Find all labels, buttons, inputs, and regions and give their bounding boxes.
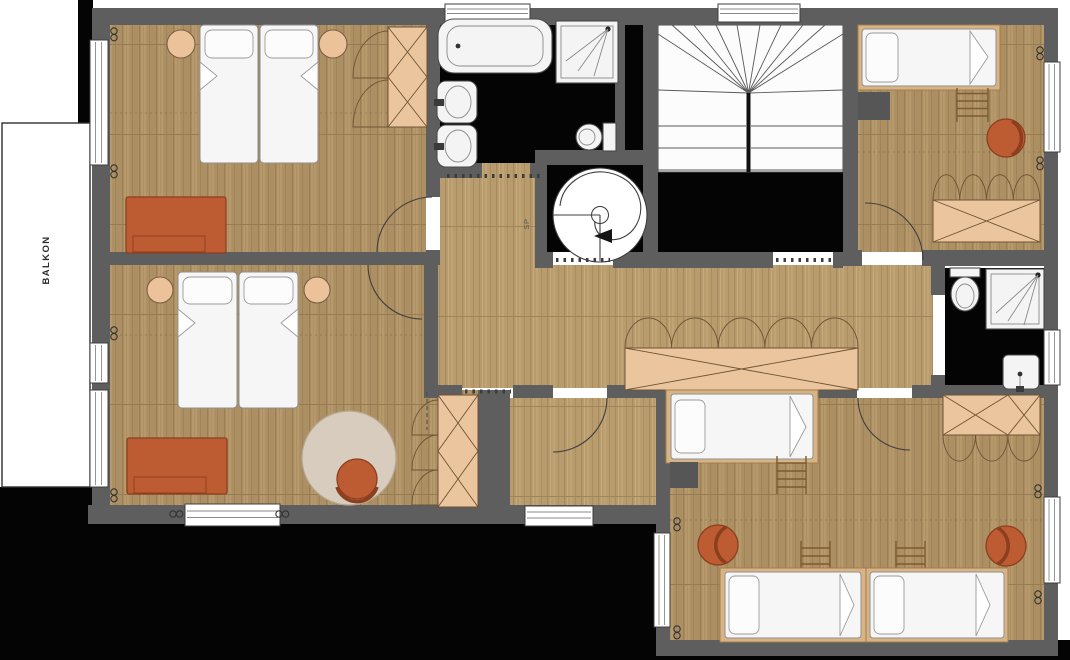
wall-top-right-south-a <box>843 250 862 266</box>
pillow <box>205 30 253 58</box>
wall-stairwell-south-a <box>658 252 773 268</box>
pillow <box>183 277 232 304</box>
shaft-void <box>625 25 643 152</box>
window-glyph <box>525 506 593 526</box>
floor-plan-canvas: BALKON <box>0 0 1070 660</box>
window-glyph <box>1044 330 1060 385</box>
sink <box>1003 355 1039 392</box>
spiral-staircase <box>553 168 647 262</box>
window-glyph <box>185 504 280 526</box>
spiral-stair-label: SP <box>522 218 531 229</box>
single-bed <box>720 568 866 642</box>
window-glyph <box>1044 62 1060 152</box>
window-glyph <box>1044 497 1060 583</box>
sink <box>434 81 477 123</box>
wall-bottom-right-west-b <box>656 627 670 656</box>
pillow <box>675 400 705 453</box>
single-bed <box>858 25 1000 90</box>
rug-with-armchair <box>302 411 396 505</box>
pillow <box>866 33 898 82</box>
void-bottom-center <box>92 523 663 660</box>
shower <box>556 21 618 83</box>
nightstand <box>670 462 698 488</box>
window-glyph <box>90 390 108 487</box>
bedside-stool <box>147 277 173 303</box>
void-bottom-left <box>0 487 92 660</box>
faucet <box>1016 386 1024 392</box>
bedside-stool <box>167 30 195 58</box>
pillow <box>265 30 313 58</box>
window-glyph <box>654 533 670 627</box>
window-glyph <box>90 40 108 165</box>
floor-small-room <box>510 398 656 510</box>
single-bed <box>666 390 818 463</box>
wall-spiral-north <box>535 150 658 165</box>
nightstand <box>858 92 890 120</box>
armchair <box>337 459 377 499</box>
toilet <box>576 123 616 151</box>
wall-wc-west-b <box>931 375 945 390</box>
wall-bedroom-hall <box>424 265 438 390</box>
pillow <box>874 576 904 634</box>
armchair <box>986 526 1026 566</box>
window-glyph <box>90 343 108 383</box>
wall-bedroom-bath-lower <box>426 250 440 265</box>
pillow <box>244 277 293 304</box>
floor-plan: BALKON <box>0 0 1070 660</box>
wall-spiral-west <box>535 150 547 265</box>
bathtub <box>438 19 552 73</box>
drain <box>456 44 461 49</box>
sofa <box>126 197 226 253</box>
window-glyph <box>718 4 800 22</box>
sofa <box>127 438 227 494</box>
faucet <box>434 143 444 150</box>
toilet <box>950 268 980 311</box>
single-bed <box>866 568 1008 642</box>
wall-spiral-south-a <box>535 252 553 268</box>
wall-between-left-bedrooms <box>92 252 438 265</box>
balcony-label: BALKON <box>41 235 52 284</box>
wall-stairwell-east <box>843 8 858 265</box>
wall-hall-south-b <box>513 385 553 398</box>
wall-small-room-west <box>496 390 510 523</box>
wall-wc-west-a <box>931 265 945 295</box>
balcony: BALKON <box>2 123 90 487</box>
stair-divider <box>747 93 751 172</box>
balcony-deck <box>2 123 90 487</box>
pillow <box>729 576 759 634</box>
stairwell-landing-dark <box>658 172 843 252</box>
wall-top-right-south-b <box>922 250 1058 266</box>
armchair <box>698 525 738 565</box>
faucet <box>434 99 444 106</box>
wall-stairwell-south-b <box>833 252 843 268</box>
sink <box>434 125 477 167</box>
floor-hall-upper <box>440 163 546 265</box>
shower <box>986 269 1044 329</box>
bedside-stool <box>319 30 347 58</box>
bedside-stool <box>304 277 330 303</box>
wall-closet-column <box>478 390 496 523</box>
armchair <box>987 119 1025 157</box>
